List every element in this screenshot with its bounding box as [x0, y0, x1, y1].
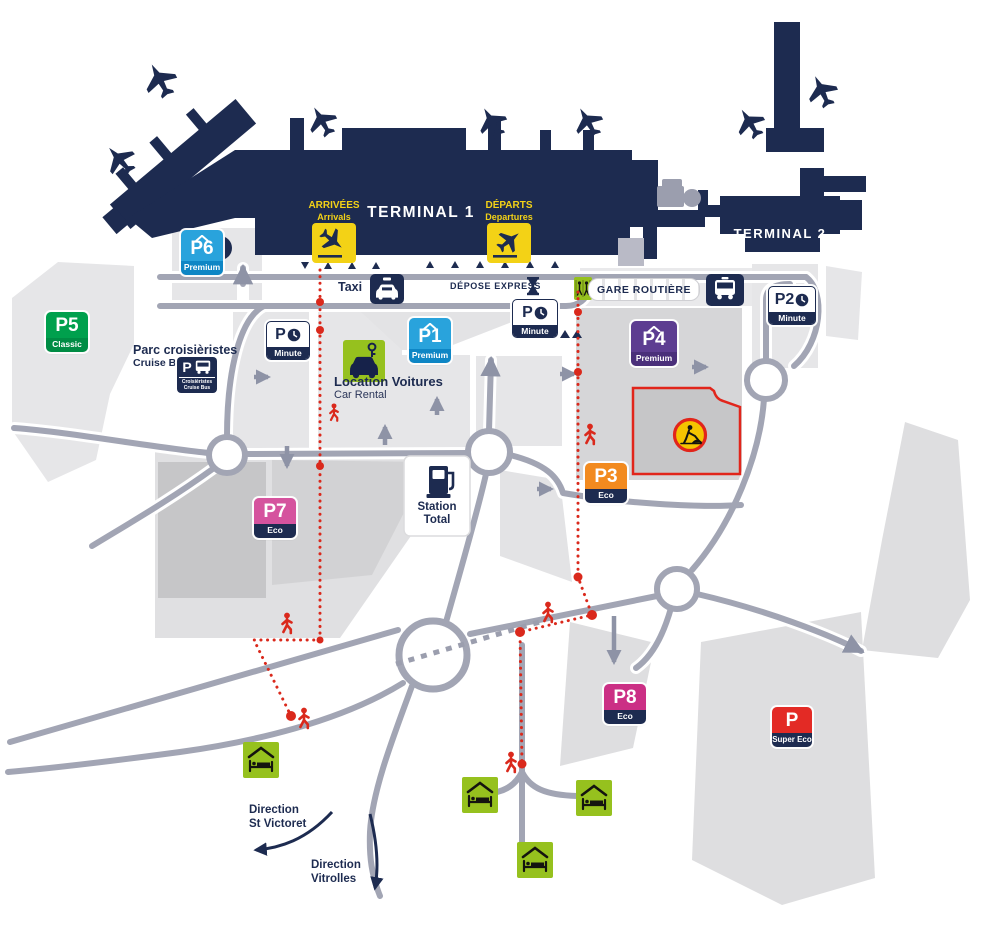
minute1-label: P	[275, 324, 286, 346]
parking-p6-badge[interactable]: P6 Premium	[181, 230, 223, 275]
terminal2-building	[700, 22, 866, 252]
hotel-bed-icon[interactable]	[462, 777, 498, 813]
clock-icon	[534, 306, 548, 320]
p6-tier: Premium	[181, 261, 223, 275]
terminal-annex-block	[618, 238, 644, 266]
plane-icon	[802, 70, 843, 112]
parking-super-eco-badge[interactable]: P Super Eco	[772, 707, 812, 747]
p6-label: P6	[190, 238, 213, 259]
p4-label: P4	[642, 329, 665, 350]
station-line2: Total	[418, 514, 457, 527]
cruise-badge-line2: Cruise Bus	[184, 385, 210, 391]
plane-icon	[137, 57, 182, 103]
minute1-tier: Minute	[267, 347, 309, 359]
gare-routiere-bus-tile[interactable]	[706, 274, 744, 306]
arrivals-sign-label: ARRIVÉES Arrivals	[308, 200, 359, 222]
p8-tier: Eco	[604, 710, 646, 724]
terminal1-label: TERMINAL 1	[367, 204, 475, 222]
red-pedestrian-icon	[507, 752, 516, 772]
minute2-tier: Minute	[513, 325, 557, 337]
hotel-bed-icon[interactable]	[576, 780, 612, 816]
direction-st-victoret-label: Direction St Victoret	[249, 804, 306, 832]
p3-label: P3	[594, 466, 617, 487]
parking-p4-badge[interactable]: P4 Premium	[631, 321, 677, 366]
hotel-bed-icon[interactable]	[517, 842, 553, 878]
taxi-stand-tile[interactable]	[370, 274, 404, 304]
dir2-line1: Direction	[311, 859, 361, 873]
departures-sign-label: DÉPARTS Departures	[485, 200, 533, 222]
parking-minute-badge-2[interactable]: P Minute	[512, 299, 558, 338]
p1-label: P1	[418, 326, 441, 347]
clock-icon	[795, 293, 809, 307]
p4-tier: Premium	[631, 352, 677, 366]
bus-icon	[194, 359, 212, 375]
plane-icon	[730, 102, 771, 144]
psuper-label: P	[786, 710, 799, 731]
service-truck	[657, 179, 701, 207]
p7-tier: Eco	[254, 524, 296, 538]
terminal2-label: TERMINAL 2	[734, 226, 827, 241]
p5-label: P5	[55, 315, 78, 336]
plane-icon	[302, 100, 343, 141]
taxi-label: Taxi	[338, 280, 362, 294]
parking-p1-badge[interactable]: P1 Premium	[409, 318, 451, 363]
p8-label: P8	[613, 687, 636, 708]
gare-routiere-band: GARE ROUTIÈRE	[588, 278, 700, 301]
cruise-parking-badge[interactable]: P Croisièristes Cruise Bus	[177, 357, 217, 393]
gare-routiere-label: GARE ROUTIÈRE	[597, 284, 691, 296]
station-line1: Station	[418, 501, 457, 514]
p5-tier: Classic	[46, 338, 88, 352]
map-base-layer	[0, 0, 1000, 936]
car-rental-fr: Location Voitures	[334, 374, 443, 389]
arrivals-fr: ARRIVÉES	[308, 200, 359, 212]
parking-p2-minute-badge[interactable]: P2 Minute	[768, 286, 816, 325]
hotel-bed-icon[interactable]	[243, 742, 279, 778]
p3-tier: Eco	[585, 489, 627, 503]
arrivals-en: Arrivals	[308, 212, 359, 222]
departures-fr: DÉPARTS	[485, 200, 533, 212]
departures-en: Departures	[485, 212, 533, 222]
clock-icon	[287, 328, 301, 342]
p7-label: P7	[263, 501, 286, 522]
cruise-title: Parc croisièristes	[133, 343, 237, 357]
parking-p8-badge[interactable]: P8 Eco	[604, 684, 646, 724]
psuper-tier: Super Eco	[772, 733, 812, 747]
car-rental-label: Location Voitures Car Rental	[334, 374, 443, 401]
car-rental-en: Car Rental	[334, 389, 443, 401]
p2-tier: Minute	[769, 312, 815, 324]
station-total-label: Station Total	[418, 501, 457, 527]
departures-sign-tile[interactable]	[487, 223, 531, 263]
parking-p5-badge[interactable]: P5 Classic	[46, 312, 88, 352]
p1-tier: Premium	[409, 349, 451, 363]
parking-p3-badge[interactable]: P3 Eco	[585, 463, 627, 503]
direction-vitrolles-label: Direction Vitrolles	[311, 859, 361, 887]
airport-access-map: ARRIVÉES Arrivals TERMINAL 1 DÉPARTS Dep…	[0, 0, 1000, 936]
dir1-line1: Direction	[249, 804, 306, 818]
arrivals-sign-tile[interactable]	[312, 223, 356, 263]
parking-p7-badge[interactable]: P7 Eco	[254, 498, 296, 538]
depose-express-label: DÉPOSE EXPRESS	[450, 281, 541, 291]
cruise-badge-p: P	[182, 359, 191, 375]
roadworks-icon	[675, 420, 706, 451]
p2-label: P2	[775, 289, 795, 311]
dir2-line2: Vitrolles	[311, 873, 361, 887]
minute2-label: P	[522, 302, 533, 324]
parking-minute-badge-1[interactable]: P Minute	[266, 321, 310, 360]
dir1-line2: St Victoret	[249, 818, 306, 832]
